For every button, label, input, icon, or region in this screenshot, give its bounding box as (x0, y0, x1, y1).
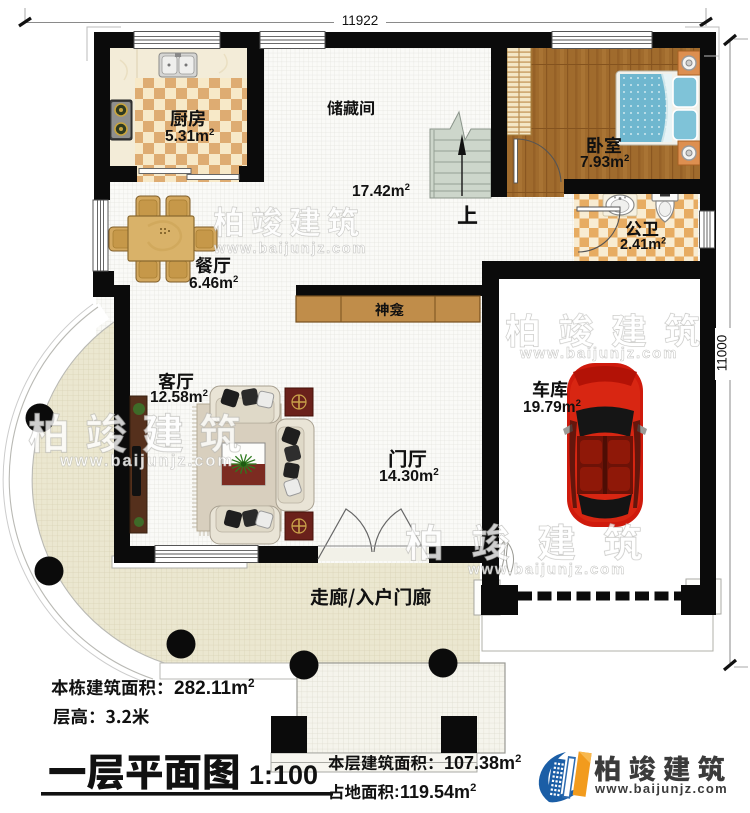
svg-text:2.41m2: 2.41m2 (620, 235, 666, 253)
svg-text:6.46m2: 6.46m2 (189, 274, 238, 292)
svg-text:www.baijunjz.com: www.baijunjz.com (594, 781, 728, 796)
svg-text:107.38m2: 107.38m2 (444, 753, 521, 773)
svg-text:11922: 11922 (342, 13, 379, 28)
svg-text:7.93m2: 7.93m2 (580, 153, 629, 171)
svg-text:12.58m2: 12.58m2 (150, 388, 208, 406)
svg-text:www.baijunjz.com: www.baijunjz.com (467, 561, 626, 578)
svg-text:www.baijunjz.com: www.baijunjz.com (519, 345, 678, 362)
svg-text:www.baijunjz.com: www.baijunjz.com (213, 241, 367, 257)
svg-text:14.30m2: 14.30m2 (379, 467, 439, 485)
svg-text:119.54m2: 119.54m2 (400, 782, 476, 802)
svg-text:5.31m2: 5.31m2 (165, 127, 214, 145)
svg-text:www.baijunjz.com: www.baijunjz.com (59, 452, 234, 470)
svg-text:17.42m2: 17.42m2 (352, 182, 410, 200)
svg-text:11000: 11000 (715, 335, 730, 372)
svg-text:1:100: 1:100 (249, 760, 318, 790)
svg-text::: : (394, 782, 400, 801)
svg-text:282.11m2: 282.11m2 (174, 677, 255, 699)
svg-text:19.79m2: 19.79m2 (523, 398, 581, 416)
